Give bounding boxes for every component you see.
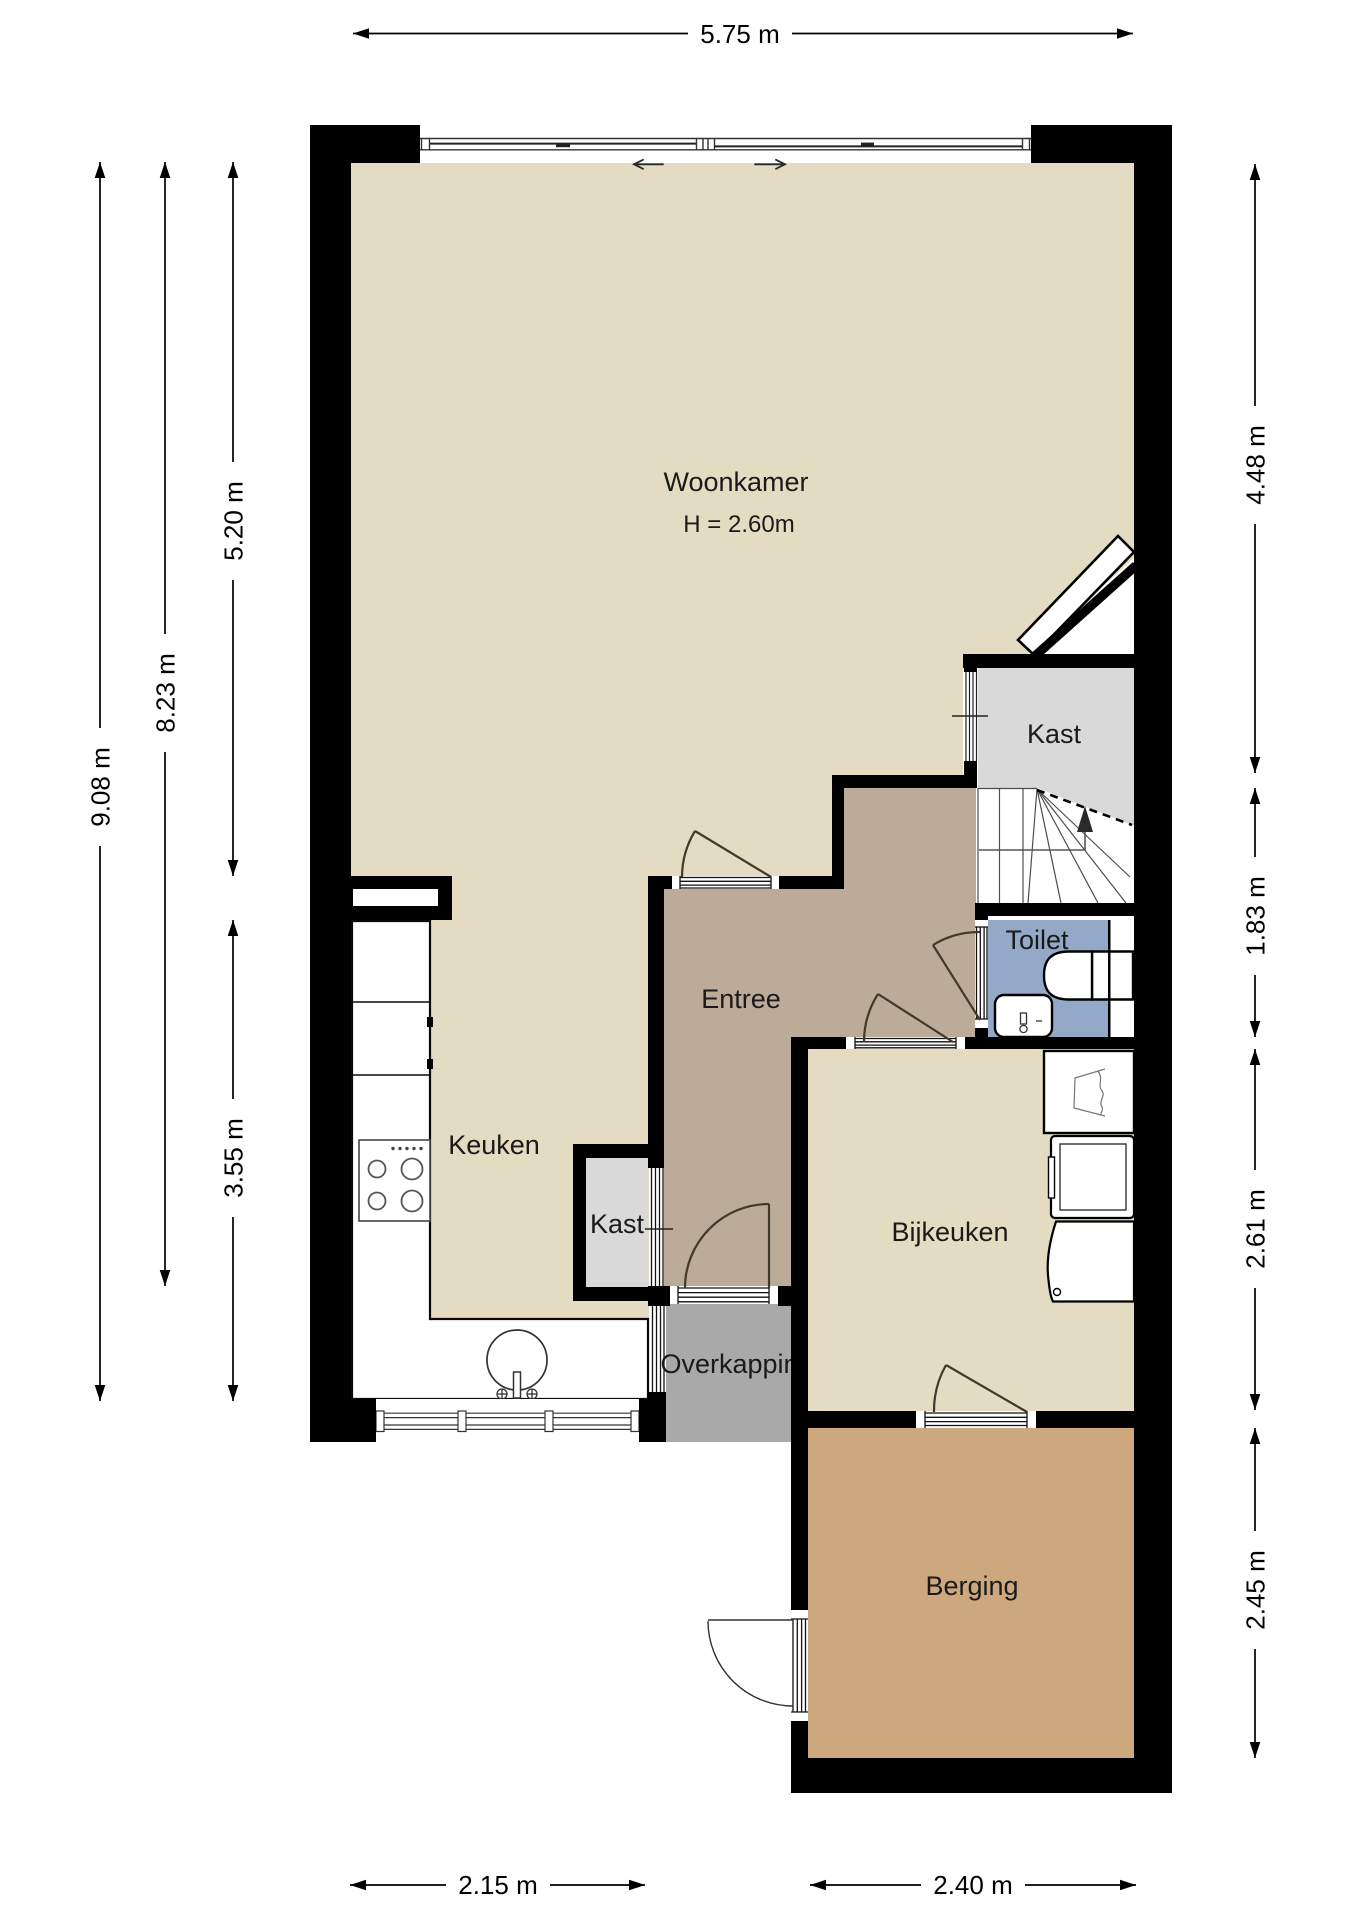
svg-text:Kast: Kast — [1027, 719, 1082, 749]
svg-text:Kast: Kast — [590, 1209, 645, 1239]
svg-text:8.23 m: 8.23 m — [151, 653, 181, 733]
svg-text:Toilet: Toilet — [1005, 925, 1069, 955]
svg-text:Overkapping: Overkapping — [660, 1349, 813, 1379]
svg-text:4.48 m: 4.48 m — [1241, 425, 1271, 505]
svg-text:3.55 m: 3.55 m — [219, 1118, 249, 1198]
svg-text:2.45 m: 2.45 m — [1241, 1550, 1271, 1630]
svg-text:2.61 m: 2.61 m — [1241, 1189, 1271, 1269]
svg-text:5.75 m: 5.75 m — [700, 19, 780, 49]
svg-text:1.83 m: 1.83 m — [1241, 876, 1271, 956]
svg-text:2.15 m: 2.15 m — [458, 1870, 538, 1900]
svg-text:Bijkeuken: Bijkeuken — [891, 1217, 1008, 1247]
svg-text:5.20 m: 5.20 m — [219, 481, 249, 561]
svg-text:Woonkamer: Woonkamer — [663, 467, 808, 497]
svg-text:H = 2.60m: H = 2.60m — [683, 511, 794, 538]
svg-text:Entree: Entree — [701, 984, 781, 1014]
svg-text:2.40 m: 2.40 m — [933, 1870, 1013, 1900]
svg-text:Keuken: Keuken — [448, 1130, 540, 1160]
svg-text:Berging: Berging — [925, 1571, 1018, 1601]
svg-text:9.08 m: 9.08 m — [86, 747, 116, 827]
